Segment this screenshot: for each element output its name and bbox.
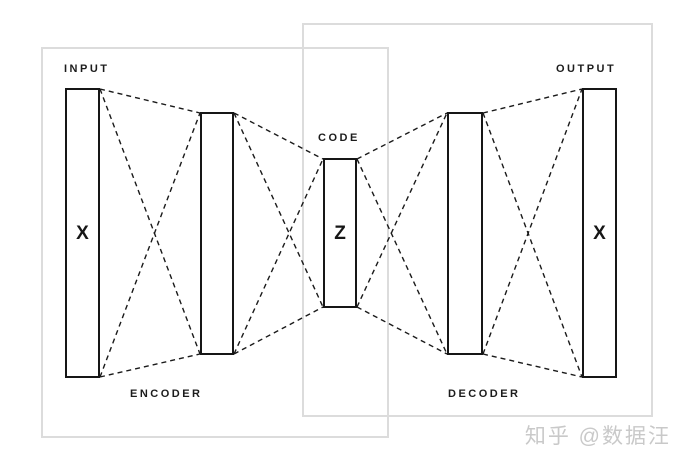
decoder-label: DECODER xyxy=(448,388,521,400)
input-symbol: X xyxy=(76,224,89,243)
input-layer-rect: X xyxy=(65,88,100,378)
code-label: CODE xyxy=(318,132,360,144)
output-symbol: X xyxy=(593,224,606,243)
output-layer-rect: X xyxy=(582,88,617,378)
output-label: OUTPUT xyxy=(556,63,616,75)
encoder-label: ENCODER xyxy=(130,388,203,400)
zhihu-watermark: 知乎 @数据汪 xyxy=(525,420,671,450)
decoder-hidden-layer-rect xyxy=(447,112,483,355)
autoencoder-diagram: X Z X INPUT CODE OUTPUT ENCODER DECODER … xyxy=(0,0,681,463)
code-symbol: Z xyxy=(334,224,346,243)
input-label: INPUT xyxy=(64,63,110,75)
code-layer-rect: Z xyxy=(323,158,357,308)
encoder-hidden-layer-rect xyxy=(200,112,234,355)
